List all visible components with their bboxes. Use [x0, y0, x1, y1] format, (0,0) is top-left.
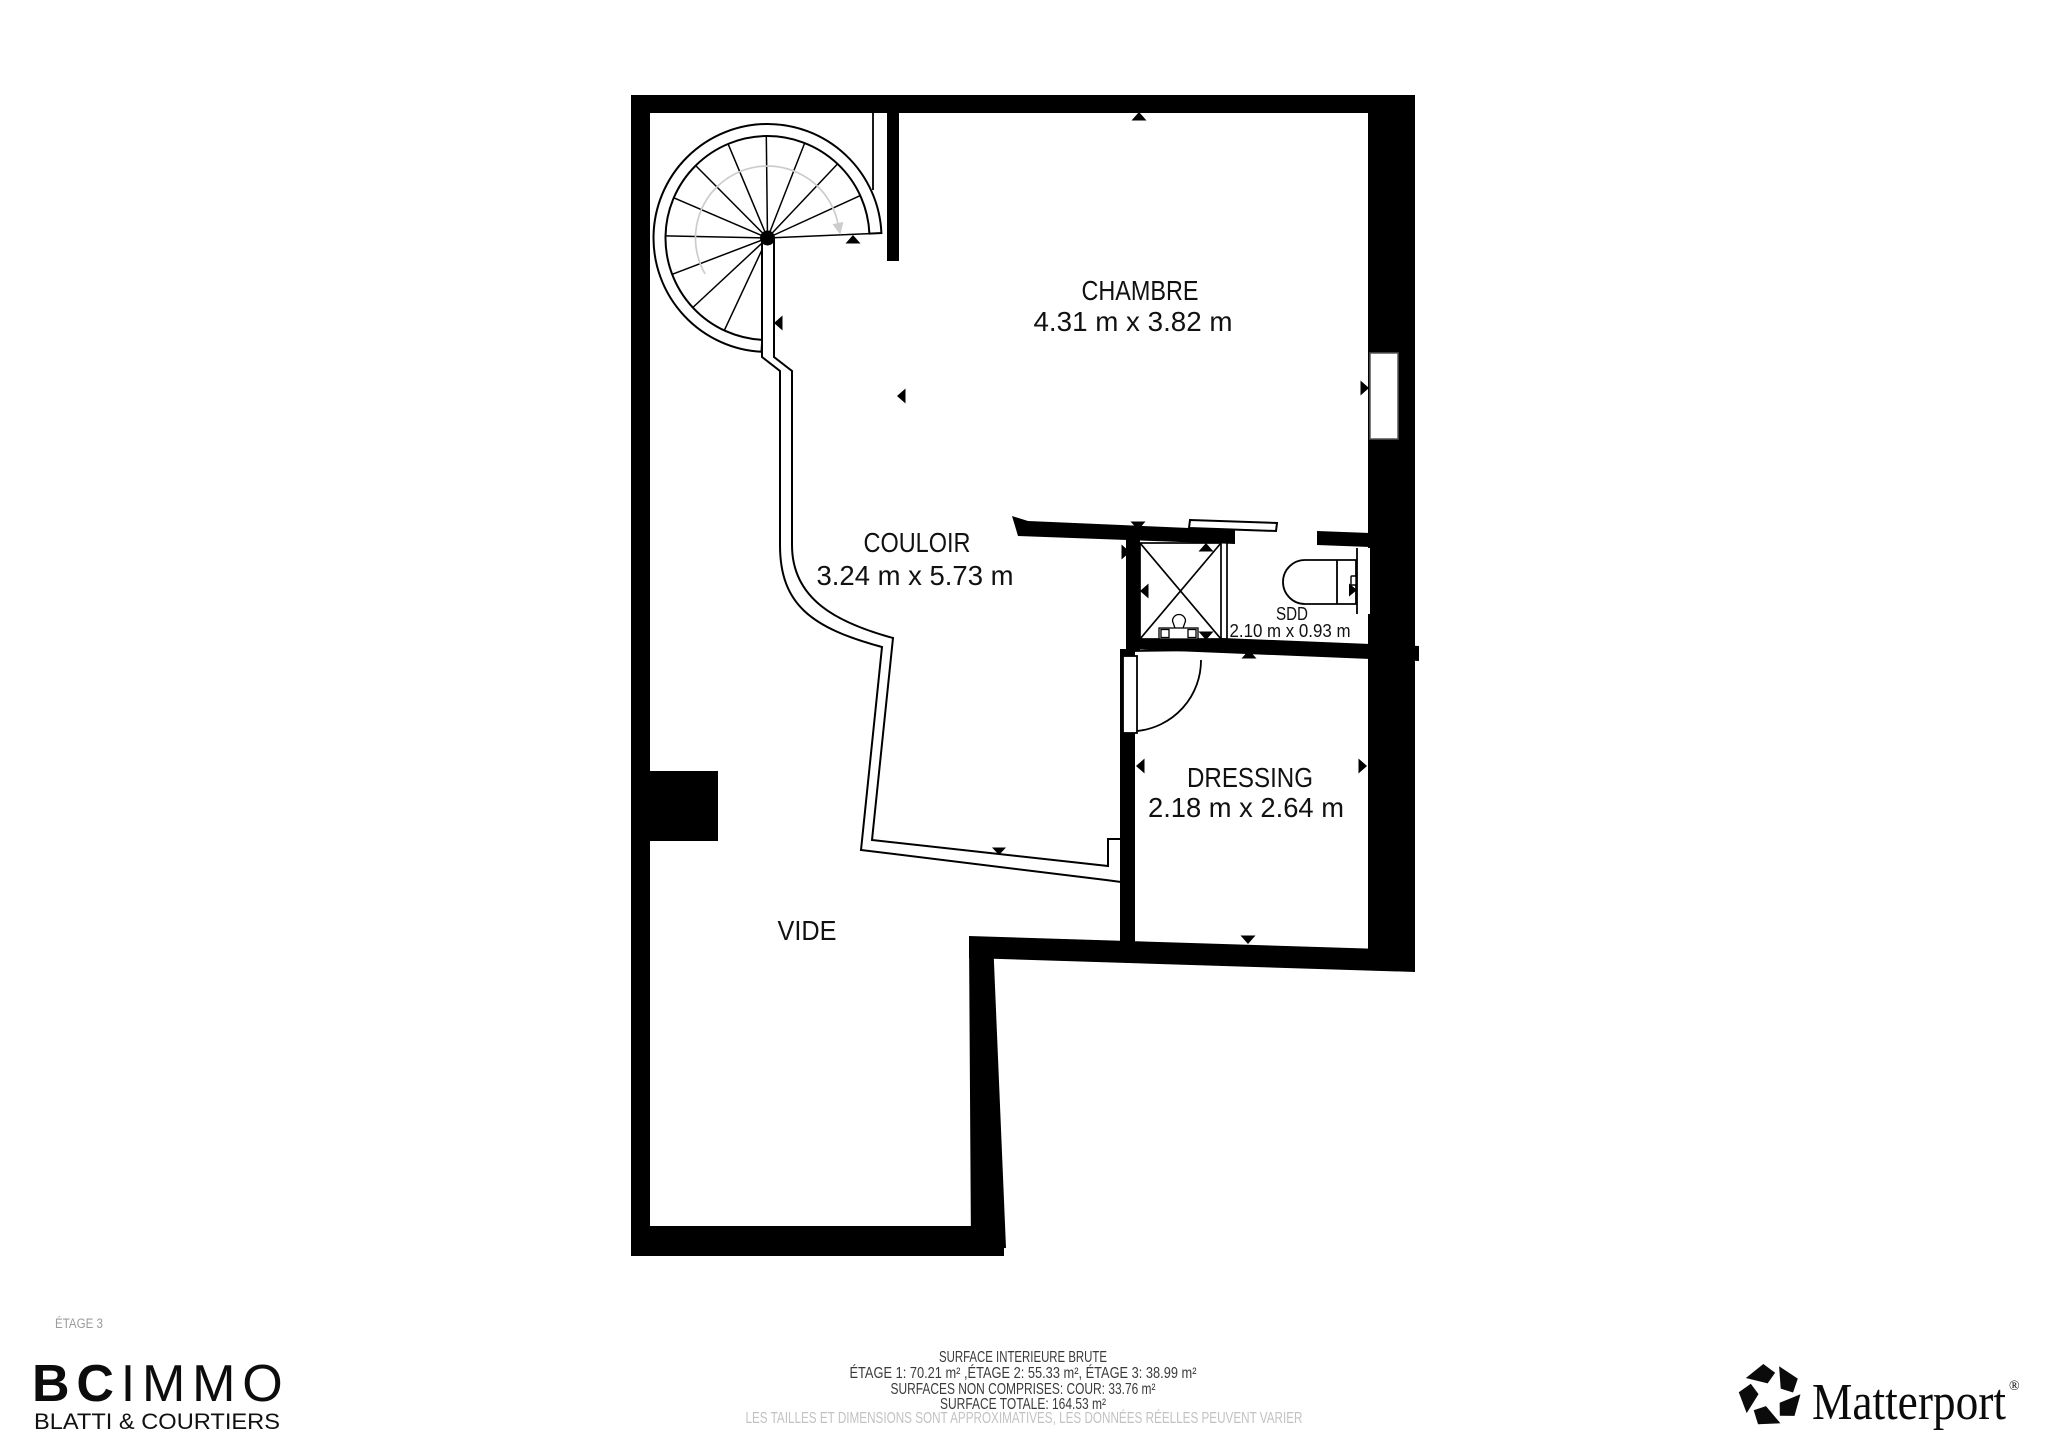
svg-text:Matterport: Matterport — [1812, 1374, 2006, 1431]
svg-text:3.24 m x 5.73 m: 3.24 m x 5.73 m — [817, 560, 1014, 591]
svg-text:LES TAILLES ET DIMENSIONS SONT: LES TAILLES ET DIMENSIONS SONT APPROXIMA… — [746, 1410, 1303, 1427]
svg-text:BCIMMO: BCIMMO — [32, 1355, 289, 1413]
svg-text:®: ® — [2009, 1379, 2020, 1394]
svg-text:2.10 m x 0.93 m: 2.10 m x 0.93 m — [1230, 621, 1351, 641]
svg-text:4.31 m x 3.82 m: 4.31 m x 3.82 m — [1034, 306, 1233, 337]
svg-text:ÉTAGE 1: 70.21 m² ,ÉTAGE 2: 55: ÉTAGE 1: 70.21 m² ,ÉTAGE 2: 55.33 m², ÉT… — [850, 1365, 1197, 1382]
svg-text:CHAMBRE: CHAMBRE — [1082, 275, 1199, 306]
svg-text:SURFACE INTERIEURE BRUTE: SURFACE INTERIEURE BRUTE — [939, 1349, 1107, 1366]
svg-text:ÉTAGE 3: ÉTAGE 3 — [55, 1316, 103, 1331]
svg-text:DRESSING: DRESSING — [1187, 762, 1313, 793]
svg-text:2.18 m x 2.64 m: 2.18 m x 2.64 m — [1148, 792, 1344, 823]
svg-text:COULOIR: COULOIR — [864, 527, 971, 558]
svg-text:VIDE: VIDE — [778, 915, 837, 946]
svg-text:BLATTI & COURTIERS: BLATTI & COURTIERS — [34, 1409, 280, 1434]
